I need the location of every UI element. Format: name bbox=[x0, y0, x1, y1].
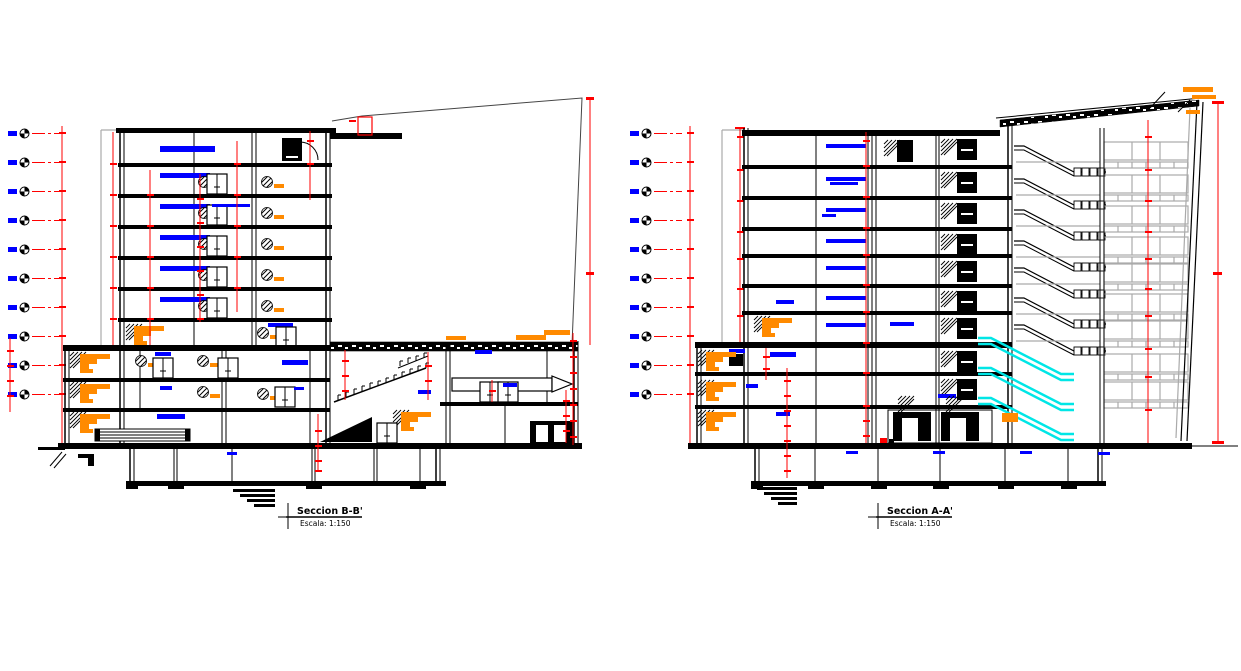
level-marker bbox=[630, 390, 682, 399]
stair-mass bbox=[320, 417, 372, 442]
stair-section bbox=[401, 412, 431, 431]
door bbox=[153, 358, 173, 378]
level-marker bbox=[630, 361, 682, 370]
level-markers-left bbox=[8, 126, 66, 446]
level-marker bbox=[630, 332, 682, 341]
title-aa: Seccion A-A' Escala: 1:150 bbox=[868, 503, 953, 529]
window-band bbox=[1104, 382, 1188, 408]
basement-aa bbox=[751, 449, 1110, 505]
section-aa: Seccion A-A' Escala: 1:150 bbox=[630, 87, 1238, 529]
stair-section bbox=[134, 326, 164, 345]
door bbox=[276, 327, 296, 347]
section-scale-aa: Escala: 1:150 bbox=[890, 519, 941, 528]
elevator-core bbox=[957, 351, 977, 372]
tower-floor bbox=[160, 173, 284, 194]
mezzanine-floor bbox=[126, 323, 296, 347]
section-bb: Seccion B-B' Escala: 1:150 bbox=[7, 97, 594, 529]
level-marker bbox=[630, 274, 682, 283]
level-marker bbox=[8, 361, 60, 370]
tower-floor bbox=[160, 297, 284, 318]
level-markers-right bbox=[630, 126, 694, 446]
level-marker bbox=[8, 216, 60, 225]
section-title-bb: Seccion B-B' bbox=[297, 506, 363, 517]
tower-floor bbox=[826, 234, 1188, 271]
tower-floor bbox=[826, 139, 1188, 176]
level-marker bbox=[8, 187, 60, 196]
stair-section bbox=[80, 354, 110, 373]
ground-steps-hatch bbox=[757, 487, 797, 505]
level-marker bbox=[630, 245, 682, 254]
level-marker bbox=[8, 274, 60, 283]
tower-bb bbox=[110, 128, 336, 449]
level-marker bbox=[8, 245, 60, 254]
roof-and-facade-aa bbox=[996, 87, 1238, 446]
stair-section bbox=[80, 384, 110, 403]
tower-floor bbox=[826, 261, 1188, 298]
level-marker bbox=[630, 187, 682, 196]
sloped-roof bbox=[1000, 100, 1199, 127]
podium-ground bbox=[70, 410, 574, 443]
tower-floor bbox=[160, 204, 284, 225]
level-marker bbox=[8, 332, 60, 341]
backdrop-profile-aa bbox=[722, 127, 745, 345]
tower-floor bbox=[826, 172, 1188, 209]
title-bb: Seccion B-B' Escala: 1:150 bbox=[278, 503, 363, 529]
level-marker bbox=[630, 129, 682, 138]
elevator-core bbox=[957, 379, 977, 400]
tower-floor bbox=[160, 266, 284, 287]
machine-floor bbox=[160, 138, 318, 161]
door bbox=[377, 423, 397, 443]
stair-section bbox=[706, 412, 736, 431]
stair-section bbox=[762, 318, 792, 337]
tower-floor bbox=[826, 291, 1188, 328]
section-title-aa: Seccion A-A' bbox=[887, 506, 953, 517]
cad-sheet: Seccion B-B' Escala: 1:150 bbox=[0, 0, 1241, 671]
cad-drawing: Seccion B-B' Escala: 1:150 bbox=[0, 0, 1241, 671]
door bbox=[275, 387, 295, 407]
level-marker bbox=[630, 303, 682, 312]
podium-level-2 bbox=[70, 382, 304, 407]
tower-floor bbox=[826, 203, 1188, 240]
level-marker bbox=[8, 390, 60, 399]
podium-level-1 bbox=[70, 350, 492, 378]
louver-bleacher bbox=[95, 429, 190, 441]
podium-bb bbox=[7, 330, 582, 449]
backdrop-profile-bb bbox=[101, 97, 594, 345]
level-marker bbox=[8, 129, 60, 138]
roof-hatch bbox=[330, 342, 578, 351]
auditorium bbox=[334, 353, 572, 402]
tower-aa bbox=[688, 124, 1192, 449]
level-marker bbox=[8, 303, 60, 312]
machine-room-box bbox=[358, 117, 372, 135]
tower-floor bbox=[160, 235, 284, 256]
stair-section bbox=[706, 382, 736, 401]
door bbox=[218, 358, 238, 378]
level-marker bbox=[8, 158, 60, 167]
section-scale-bb: Escala: 1:150 bbox=[300, 519, 351, 528]
tower-floor bbox=[826, 318, 1188, 355]
level-marker bbox=[630, 158, 682, 167]
level-marker bbox=[630, 216, 682, 225]
ground-steps-hatch bbox=[233, 489, 275, 507]
